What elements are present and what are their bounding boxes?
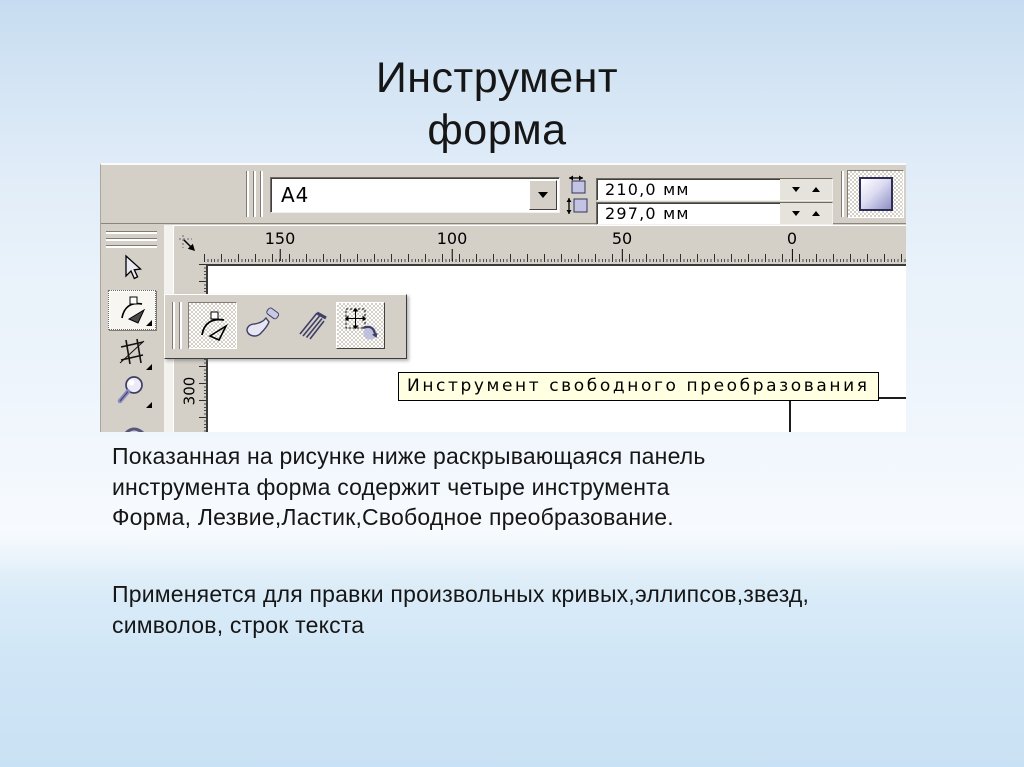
tooltip: Инструмент свободного преобразования	[398, 372, 879, 401]
ruler-origin-icon	[177, 233, 201, 261]
horizontal-ruler[interactable]: 150 100 50 0	[173, 225, 906, 265]
shape-tool-flyout	[164, 294, 407, 359]
zoom-tool-icon	[116, 374, 148, 410]
free-transform-icon	[343, 306, 379, 346]
paper-width-field[interactable]: 210,0 мм	[596, 178, 833, 201]
crop-tool-icon	[117, 337, 147, 371]
ruler-label: 150	[265, 229, 296, 261]
crop-tool-button[interactable]	[108, 334, 156, 374]
shape-tool-icon	[116, 292, 148, 328]
shape-tool-icon	[196, 307, 230, 345]
paper-size-value: А4	[271, 183, 529, 207]
page-left-edge	[789, 397, 791, 432]
spinner-up-icon[interactable]	[812, 207, 820, 216]
pick-tool-icon	[117, 253, 147, 287]
paper-size-icons	[565, 175, 593, 215]
ruler-ticks	[204, 248, 906, 262]
flyout-indicator-icon	[146, 402, 152, 408]
paper-height-icon	[565, 195, 593, 215]
paragraph-line: Применяется для правки произвольных крив…	[112, 579, 809, 610]
paragraph-line: Форма, Лезвие,Ластик,Свободное преобразо…	[112, 502, 706, 533]
ruler-label: 100	[437, 229, 468, 261]
portrait-orientation-button[interactable]	[847, 170, 904, 218]
toolbox-grip[interactable]	[103, 227, 160, 252]
paper-height-spinner[interactable]	[780, 203, 832, 224]
coreldraw-screenshot: А4 210,0 мм 297,0 мм	[100, 163, 906, 432]
toolbar-separator	[839, 171, 846, 217]
roughen-brush-icon	[295, 307, 329, 345]
portrait-page-icon	[859, 177, 893, 211]
tooltip-text: Инструмент свободного преобразования	[407, 376, 870, 396]
flyout-grip[interactable]	[170, 302, 184, 349]
flyout-indicator-icon	[146, 364, 152, 370]
freehand-tool-button[interactable]	[108, 414, 156, 432]
ruler-label: 50	[612, 229, 632, 261]
dropdown-button[interactable]	[529, 180, 557, 210]
smudge-brush-icon	[245, 307, 281, 345]
vertical-ruler-label: 300	[181, 375, 199, 408]
shape-tool-button[interactable]	[108, 290, 156, 330]
pick-tool-button[interactable]	[108, 250, 156, 290]
flyout-indicator-icon	[146, 320, 152, 326]
paper-width-spinner[interactable]	[780, 179, 832, 200]
ruler-label: 0	[787, 229, 797, 261]
paragraph-line: инструмента форма содержит четыре инстру…	[112, 472, 706, 503]
paragraph-line: символов, строк текста	[112, 610, 809, 641]
flyout-shape-tool-button[interactable]	[188, 302, 237, 349]
spinner-down-icon[interactable]	[792, 187, 800, 196]
spinner-up-icon[interactable]	[812, 183, 820, 192]
body-paragraph-1: Показанная на рисунке ниже раскрывающаяс…	[112, 441, 706, 533]
property-bar: А4 210,0 мм 297,0 мм	[101, 165, 906, 224]
paper-width-value: 210,0 мм	[597, 180, 780, 199]
body-paragraph-2: Применяется для правки произвольных крив…	[112, 579, 809, 640]
paper-width-icon	[565, 175, 593, 195]
paper-size-select[interactable]: А4	[270, 177, 560, 213]
flyout-smudge-tool-button[interactable]	[238, 302, 287, 349]
page-title: Инструмент форма	[0, 52, 994, 156]
paper-height-field[interactable]: 297,0 мм	[596, 202, 833, 225]
freehand-tool-icon	[118, 423, 146, 432]
toolbar-grip[interactable]	[244, 171, 265, 217]
zoom-tool-button[interactable]	[108, 372, 156, 412]
paragraph-line: Показанная на рисунке ниже раскрывающаяс…	[112, 441, 706, 472]
chevron-down-icon	[538, 192, 548, 203]
slide-canvas: Инструмент форма А4 210,0 мм	[0, 0, 1024, 767]
title-line-1: Инструмент	[0, 52, 994, 104]
paper-height-value: 297,0 мм	[597, 204, 780, 223]
flyout-roughen-tool-button[interactable]	[287, 302, 336, 349]
spinner-down-icon[interactable]	[792, 211, 800, 220]
toolbox	[101, 225, 165, 432]
title-line-2: форма	[0, 104, 994, 156]
flyout-free-transform-button[interactable]	[336, 302, 385, 349]
